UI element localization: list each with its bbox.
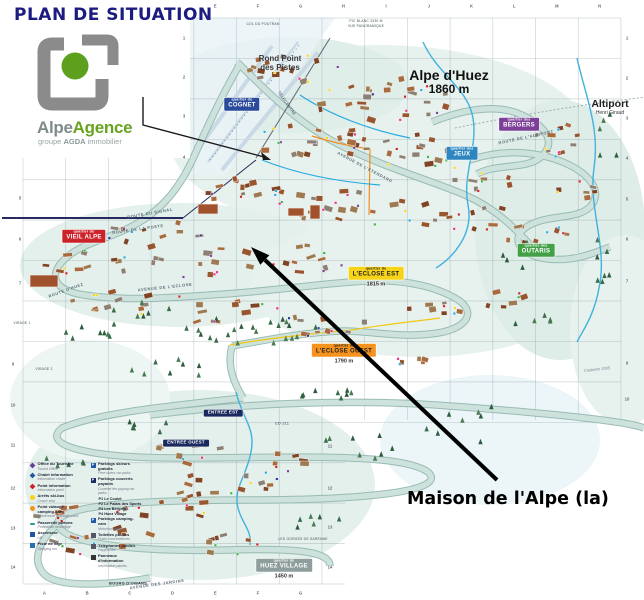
label-pic-blanc: PIC BLANC 3330 M xyxy=(349,19,382,23)
legend-label-en: Coach stop xyxy=(38,499,65,503)
footbridge-icon xyxy=(30,523,35,525)
legend-parking-entry: P1 Le Coulet xyxy=(99,497,143,501)
grid-label: 9 xyxy=(12,362,14,367)
grid-label: G xyxy=(299,591,302,596)
label-altiport: Altiport xyxy=(591,98,628,110)
label-virage-1: VIRAGE 1 xyxy=(13,321,30,325)
info-panel-icon xyxy=(91,555,96,560)
situation-map-page: PLAN DE SITUATION AlpeAgence groupe AGDA… xyxy=(0,0,644,600)
lift-icon xyxy=(30,532,35,537)
grid-label: 7 xyxy=(19,281,21,286)
badge-box-cognet: quartier duCOGNET xyxy=(224,98,259,111)
label-gorges-de-sarenne: LES GORGES DE SARENNE xyxy=(278,537,327,541)
legend-label-en: Information point xyxy=(38,488,71,492)
grid-label: E xyxy=(214,4,217,9)
legend-item: AscenseurLift xyxy=(30,531,82,540)
legend-label-en: Information panels xyxy=(98,564,142,568)
grid-label: 2 xyxy=(183,75,185,80)
sledging-icon xyxy=(30,543,35,548)
motorhome-parking-icon: P xyxy=(91,518,96,523)
grid-label: E xyxy=(214,591,217,596)
grid-label: 9 xyxy=(626,361,628,366)
badge-box-outaris: quartier desOUTARIS xyxy=(518,244,555,257)
grid-label: C xyxy=(128,591,131,596)
paid-parking-icon: P xyxy=(91,478,96,483)
grid-label: 2 xyxy=(626,76,628,81)
grid-label: B xyxy=(86,591,89,596)
badge-name: JEUX xyxy=(454,152,471,159)
grid-label: 6 xyxy=(626,237,628,242)
legend-text: Piste de lugeSledging run xyxy=(38,542,63,551)
badge-name: ENTREE EST xyxy=(208,411,239,416)
legend-text: Parkings skieurs gratuitsFree skiers car… xyxy=(98,462,142,475)
grid-label: F xyxy=(257,591,260,596)
badge-box-vieil-alpe: quartier duVIEIL ALPE xyxy=(62,230,105,243)
logo-green-dot xyxy=(62,53,89,80)
grid-label: 12 xyxy=(328,486,333,491)
legend-column: PParkings skieurs gratuitsFree skiers ca… xyxy=(91,462,143,570)
grid-label: 14 xyxy=(328,565,333,570)
tourist-office-icon xyxy=(30,462,36,468)
grid-label: 11 xyxy=(11,443,15,448)
grid-label: 10 xyxy=(625,397,630,402)
badge-name: BERGERS xyxy=(503,123,535,130)
legend-parking-entry: P3 Les Bergers xyxy=(99,507,143,511)
legend-label-en: Information chalet xyxy=(38,477,73,481)
badge-cognet: quartier duCOGNET xyxy=(224,98,259,111)
legend-item: Point vidange camping-carsMotorhome drai… xyxy=(30,505,82,518)
grid-label: 5 xyxy=(19,196,21,201)
badge-name: L'ECLOSE EST xyxy=(353,272,400,279)
grid-label: 6 xyxy=(19,237,21,242)
badge-entree-est: ENTREE EST xyxy=(204,410,243,417)
badge-eclose-est: quartier deL'ECLOSE EST1815 m xyxy=(349,267,404,288)
badge-box-entree-ouest: ENTREE OUEST xyxy=(163,440,209,447)
label-virage-2: VIRAGE 2 xyxy=(35,367,52,371)
badge-name: HUEZ VILLAGE xyxy=(260,564,308,571)
grid-label: J xyxy=(428,4,430,9)
legend-label-fr: Parkings skieurs gratuits xyxy=(98,462,142,471)
badge-outaris: quartier desOUTARIS xyxy=(518,244,555,257)
legend-item: Panneaux d'informationInformation panels xyxy=(91,554,143,567)
badge-name: OUTARIS xyxy=(522,249,551,256)
badge-jeux: quartier desJEUX xyxy=(447,147,478,160)
legend-label-en: Motorhome drainage point xyxy=(38,514,82,518)
grid-label: H xyxy=(342,4,345,9)
legend-item: PParkings couverts payantsCovered fee-pa… xyxy=(91,477,143,494)
free-parking-icon: P xyxy=(91,463,96,468)
badge-box-eclose-ouest: quartier deL'ECLOSE OUEST xyxy=(312,344,376,357)
legend-text: Passerelle piétonsPedestrian footbridge xyxy=(38,521,73,530)
badge-altitude: 1790 m xyxy=(335,358,354,364)
grid-label: 3 xyxy=(183,114,185,119)
toilets-icon xyxy=(91,533,96,538)
legend-label-fr: Point vidange camping-cars xyxy=(38,505,82,514)
legend-label-en: Tourist Office xyxy=(38,467,74,471)
motorhome-drain-icon xyxy=(30,506,35,511)
legend-item: PParkings camping-carsMotorhome park xyxy=(91,517,143,530)
grid-label: 4 xyxy=(626,156,628,161)
label-cd211: CD 211 xyxy=(275,421,289,426)
badge-entree-ouest: ENTREE OUEST xyxy=(163,440,209,447)
label-pic-blanc-sub: VUE PANORAMIQUE xyxy=(348,24,384,28)
legend-text: Parkings camping-carsMotorhome park xyxy=(98,517,142,530)
legend-text: Arrêts ski-busCoach stop xyxy=(38,494,65,503)
grid-label: 7 xyxy=(626,279,628,284)
grid-label: 11 xyxy=(328,444,332,449)
legend-item: Point informationInformation point xyxy=(30,484,82,493)
annotation-label: Maison de l'Alpe (la) xyxy=(407,489,609,509)
badge-name: ENTREE OUEST xyxy=(167,441,205,446)
badge-huez-village: quartier deHUEZ VILLAGE1450 m xyxy=(256,559,312,580)
legend-text: Point informationInformation point xyxy=(38,484,71,493)
page-title: PLAN DE SITUATION xyxy=(14,5,213,25)
grid-label: 3 xyxy=(626,116,628,121)
legend-item: PParkings skieurs gratuitsFree skiers ca… xyxy=(91,462,143,475)
badge-vieil-alpe: quartier duVIEIL ALPE xyxy=(62,230,105,243)
legend-item: Téléphones publicsPayphones xyxy=(91,544,143,553)
alpeagence-logo-mark xyxy=(36,34,124,116)
grid-label: 4 xyxy=(183,155,185,160)
ski-bus-stop-icon xyxy=(30,495,35,500)
payphone-icon xyxy=(91,544,96,549)
grid-label: 14 xyxy=(11,565,16,570)
grid-label: D xyxy=(171,591,174,596)
badge-name: VIEIL ALPE xyxy=(66,235,101,242)
brand-tagline: groupe AGDA immobilier xyxy=(38,137,122,146)
badge-eclose-ouest: quartier deL'ECLOSE OUEST1790 m xyxy=(312,344,376,365)
label-col-du-poutran: COL DU POUTRAN xyxy=(246,22,279,26)
legend-item: Toilettes publicsPublic conveniences xyxy=(91,533,143,542)
legend-label-en: Pedestrian footbridge xyxy=(38,525,73,529)
legend-text: Parkings couverts payantsCovered fee-pay… xyxy=(98,477,142,494)
legend-item: Passerelle piétonsPedestrian footbridge xyxy=(30,521,82,530)
legend-text: Point vidange camping-carsMotorhome drai… xyxy=(38,505,82,518)
legend-label-en: Free skiers car parks xyxy=(98,471,142,475)
grid-label: A xyxy=(43,591,46,596)
grid-label: L xyxy=(513,4,516,9)
badge-box-entree-est: ENTREE EST xyxy=(204,410,243,417)
badge-altitude: 1450 m xyxy=(275,573,294,579)
legend-text: Téléphones publicsPayphones xyxy=(98,544,135,553)
legend-text: Panneaux d'informationInformation panels xyxy=(98,554,142,567)
chalet-info-icon xyxy=(30,473,36,479)
legend-parking-entry: P2 Le Palais des Sports xyxy=(99,502,143,506)
alpeagence-logo: AlpeAgence groupe AGDA immobilier xyxy=(36,34,166,121)
badge-box-bergers: quartier desBERGERS xyxy=(499,118,539,131)
grid-label: 13 xyxy=(328,525,333,530)
grid-label: 5 xyxy=(626,197,628,202)
grid-label: M xyxy=(555,4,559,9)
grid-label: F xyxy=(257,4,260,9)
badge-box-jeux: quartier desJEUX xyxy=(447,147,478,160)
grid-label: G xyxy=(299,4,302,9)
legend-column: Office du TourismeTourist OfficeChalet i… xyxy=(30,462,82,570)
label-alpe-dhuez-altitude: 1860 m xyxy=(429,82,470,96)
grid-label: I xyxy=(385,4,386,9)
label-rond-point: Rond Point des Pistes xyxy=(259,54,302,72)
badge-name: COGNET xyxy=(228,103,255,110)
legend-item: Arrêts ski-busCoach stop xyxy=(30,494,82,503)
legend-label-en: Sledging run xyxy=(38,547,63,551)
badge-box-eclose-est: quartier deL'ECLOSE EST xyxy=(349,267,404,280)
grid-label: K xyxy=(470,4,473,9)
legend-text: Office du TourismeTourist Office xyxy=(38,462,74,471)
legend-label-en: Covered fee-paying car parks xyxy=(98,487,142,495)
legend-item: Chalet informationInformation chalet xyxy=(30,473,82,482)
legend-label-en: Public conveniences xyxy=(98,537,130,541)
legend-item: Office du TourismeTourist Office xyxy=(30,462,82,471)
grid-label: 10 xyxy=(11,403,16,408)
brand-name: AlpeAgence xyxy=(37,118,132,138)
legend-label-en: Motorhome park xyxy=(98,527,142,531)
brand-alpe: Alpe xyxy=(37,118,73,137)
badge-name: L'ECLOSE OUEST xyxy=(316,349,372,356)
grid-label: 1 xyxy=(183,36,185,41)
map-legend: Office du TourismeTourist OfficeChalet i… xyxy=(30,462,142,570)
badge-box-huez-village: quartier deHUEZ VILLAGE xyxy=(256,559,312,572)
legend-label-en: Payphones xyxy=(98,548,135,552)
badge-altitude: 1815 m xyxy=(367,281,386,287)
legend-label-fr: Panneaux d'information xyxy=(98,554,142,563)
legend-label-en: Lift xyxy=(38,536,58,540)
legend-label-fr: Parkings couverts payants xyxy=(98,477,142,486)
grid-label: N xyxy=(598,4,601,9)
legend-text: AscenseurLift xyxy=(38,531,58,540)
grid-label: 1 xyxy=(626,36,628,41)
info-point-icon xyxy=(30,484,36,490)
legend-text: Chalet informationInformation chalet xyxy=(38,473,73,482)
legend-text: Toilettes publicsPublic conveniences xyxy=(98,533,130,542)
grid-label: 12 xyxy=(11,486,16,491)
badge-bergers: quartier desBERGERS xyxy=(499,118,539,131)
label-alpe-dhuez: Alpe d'Huez xyxy=(409,67,489,83)
legend-label-fr: Parkings camping-cars xyxy=(98,517,142,526)
grid-label: 13 xyxy=(11,526,16,531)
label-altiport-sub: Henri Giraud xyxy=(596,110,624,116)
legend-item: Piste de lugeSledging run xyxy=(30,542,82,551)
brand-agence: Agence xyxy=(73,118,133,137)
